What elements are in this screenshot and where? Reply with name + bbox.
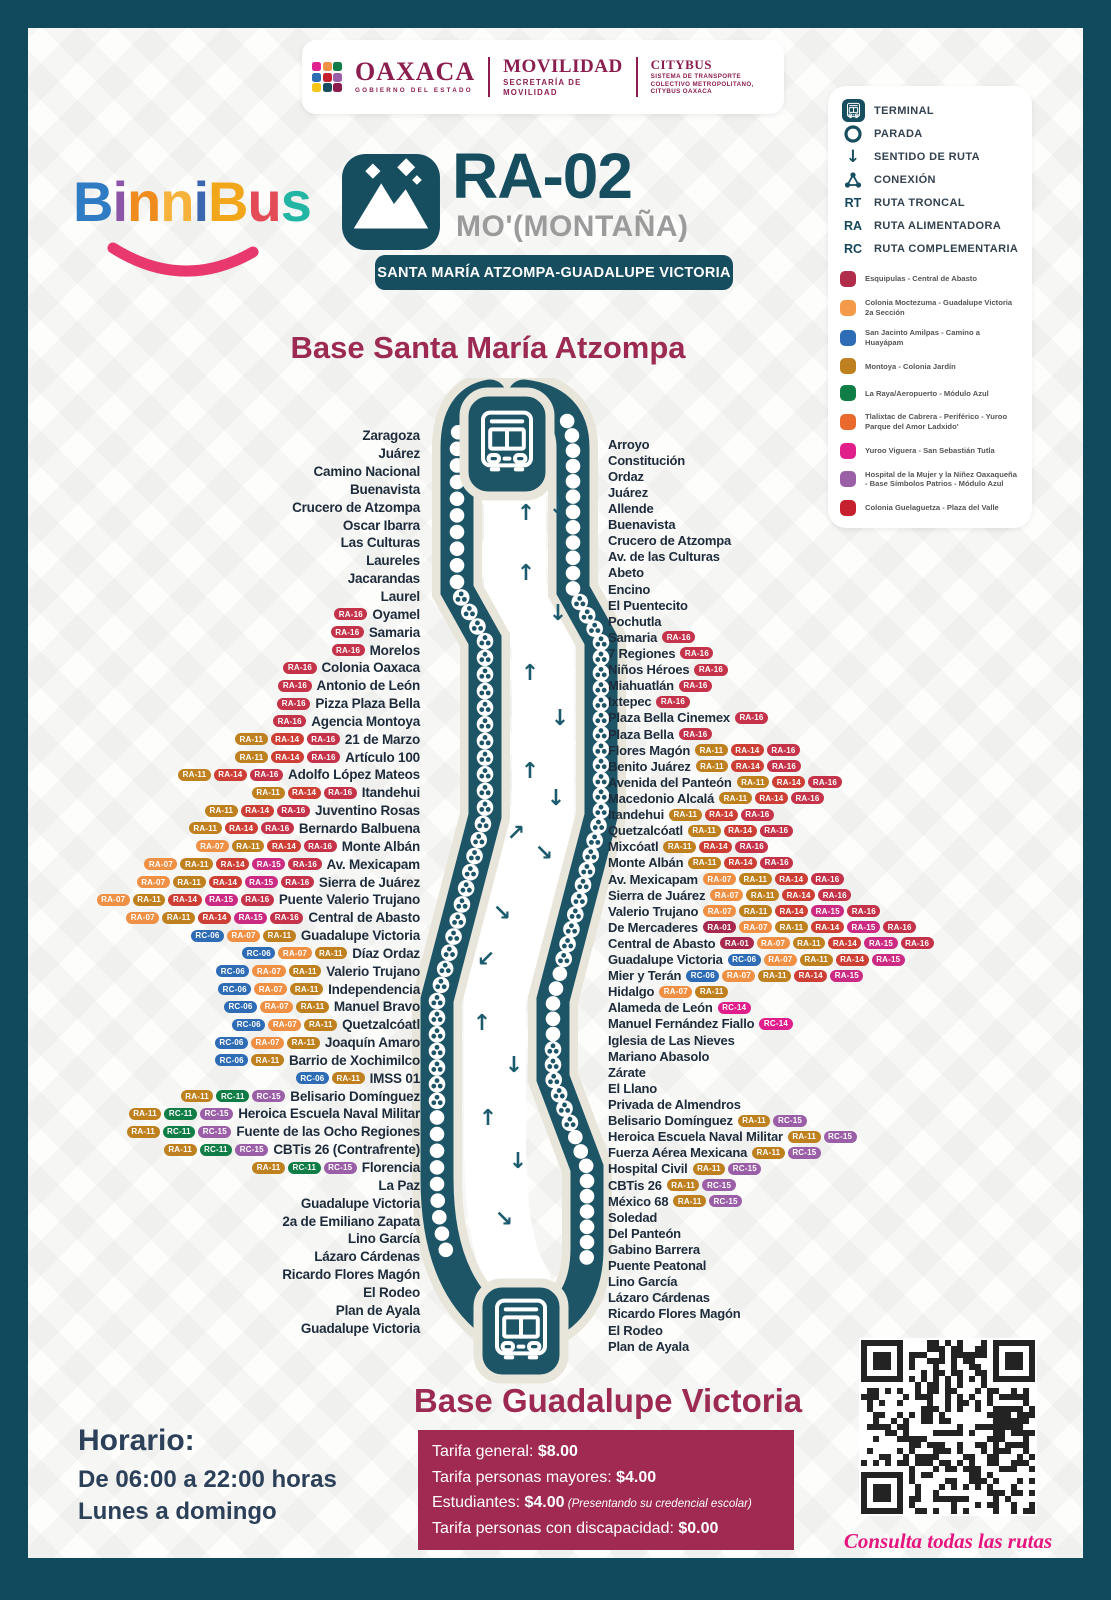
stop-badges: RA-11RC-11RC-15: [127, 1126, 232, 1138]
connection-label: Colonia Moctezuma - Guadalupe Victoria 2…: [865, 298, 1020, 317]
stop-row: 7 RegionesRA-16: [608, 645, 1048, 661]
route-badge: RA-11: [695, 744, 728, 756]
stop-row: Mier y TeránRC-06RA-07RA-11RA-14RA-15: [608, 968, 1048, 984]
stop-row: Crucero de Atzompa: [36, 498, 420, 516]
connection-icon: [840, 170, 866, 190]
legend-abbr: RT: [840, 196, 866, 210]
route-badge: RC-15: [235, 1144, 268, 1156]
stop-name: Buenavista: [608, 517, 675, 532]
connection-stop-dot: [545, 1072, 562, 1089]
stop-row: Juárez: [36, 445, 420, 463]
legend-label: SENTIDO DE RUTA: [874, 151, 980, 163]
stop-dot: [566, 505, 581, 520]
stop-row: RA-11RC-11RC-15Belisario Domínguez: [36, 1087, 420, 1105]
stop-row: Oscar Ibarra: [36, 516, 420, 534]
connection-stop-dot: [556, 1100, 573, 1117]
stop-row: Privada de Almendros: [608, 1096, 1048, 1112]
stop-name: Quetzalcóatl: [608, 823, 683, 838]
route-badge: RA-07: [268, 1019, 301, 1031]
stop-name: Privada de Almendros: [608, 1097, 741, 1112]
stop-badges: RA-11RC-15: [752, 1147, 821, 1159]
connection-label: Tlalixtac de Cabrera - Periférico - Yuro…: [865, 412, 1020, 431]
route-badge: RA-11: [800, 954, 833, 966]
stop-name: Plaza Bella Cinemex: [608, 710, 730, 725]
route-badge: RA-07: [764, 954, 797, 966]
stop-dot: [430, 1177, 445, 1192]
stop-row: Guadalupe Victoria: [36, 1319, 420, 1337]
legend-connection-row: La Raya/Aeropuerto - Módulo Azul: [840, 385, 1020, 401]
stop-dot: [566, 520, 581, 535]
stop-name: Juventino Rosas: [315, 803, 420, 818]
stop-badges: RA-11RA-14RA-16: [252, 787, 357, 799]
stop-row: RC-06RA-11Barrio de Xochimilco: [36, 1052, 420, 1070]
fares-box: Tarifa general: $8.00Tarifa personas may…: [418, 1430, 794, 1550]
stop-row: Valerio TrujanoRA-07RA-11RA-14RA-15RA-16: [608, 903, 1048, 919]
logo-letter: u: [247, 170, 280, 233]
stop-row: Central de AbastoRA-01RA-07RA-11RA-14RA-…: [608, 935, 1048, 951]
route-badge: RA-15: [872, 954, 905, 966]
stop-row: 2a de Emiliano Zapata: [36, 1212, 420, 1230]
stop-dot: [566, 566, 581, 581]
stop-name: Samaria: [608, 630, 657, 645]
stop-name: Plaza Bella: [608, 727, 674, 742]
stop-badges: RA-11RC-11RC-15: [181, 1090, 286, 1102]
route-badge: RC-15: [709, 1195, 742, 1207]
fare-amount: $4.00: [616, 1469, 656, 1486]
connection-stop-dot: [563, 921, 580, 938]
route-badge: RA-11: [696, 760, 729, 772]
stop-row: Macedonio AlcaláRA-11RA-14RA-16: [608, 790, 1048, 806]
stop-row: RA-11RC-11RC-15Heroica Escuela Naval Mil…: [36, 1105, 420, 1123]
stop-row: Laurel: [36, 588, 420, 606]
connection-stop-dot: [454, 896, 471, 913]
stop-dot: [430, 1160, 445, 1175]
stop-name: Morelos: [370, 643, 420, 658]
legend-abbr: RA: [840, 219, 866, 233]
connection-stop-dot: [590, 817, 607, 834]
connection-stop-dot: [593, 695, 610, 712]
stop-dot: [450, 508, 465, 523]
stop-badges: RA-11RA-14RA-16: [688, 857, 793, 869]
stop-row: Sierra de JuárezRA-07RA-11RA-14RA-16: [608, 887, 1048, 903]
legend-connection-row: Esquipulas - Central de Abasto: [840, 271, 1020, 287]
stop-badges: RA-16: [278, 680, 311, 692]
logo-letter: B: [73, 170, 112, 233]
route-badge: RA-16: [679, 680, 712, 692]
route-code: RA-02: [452, 144, 632, 208]
stop-dot: [430, 1110, 445, 1125]
route-badge: RA-11: [164, 1144, 197, 1156]
route-badge: RA-14: [267, 840, 300, 852]
stop-badges: RA-07RA-11RA-14RA-15RA-16: [703, 905, 880, 917]
route-badge: RA-14: [731, 760, 764, 772]
stop-row: Abeto: [608, 565, 1048, 581]
route-badge: RA-14: [731, 744, 764, 756]
stop-row: Plaza Bella CinemexRA-16: [608, 710, 1048, 726]
stop-row: México 68RA-11RC-15: [608, 1193, 1048, 1209]
route-badge: RA-11: [251, 1054, 284, 1066]
stop-name: Valerio Trujano: [608, 904, 698, 919]
fare-amount: $8.00: [538, 1443, 578, 1460]
stop-row: Crucero de Atzompa: [608, 533, 1048, 549]
logo-letter: i: [193, 170, 208, 233]
route-badge: RA-07: [252, 965, 285, 977]
stop-dot: [580, 1189, 595, 1204]
route-badge: RA-16: [250, 769, 283, 781]
stop-row: RA-16Morelos: [36, 641, 420, 659]
connection-stop-dot: [453, 589, 470, 606]
stop-badges: RA-11RA-14RA-16: [235, 733, 340, 745]
connection-color-chip: [840, 330, 856, 346]
legend-label: RUTA TRONCAL: [874, 197, 965, 209]
stop-row: De MercaderesRA-01RA-07RA-11RA-14RA-15RA…: [608, 919, 1048, 935]
stop-name: Macedonio Alcalá: [608, 791, 714, 806]
connection-stop-dot: [429, 1009, 446, 1026]
stop-badges: RA-07RA-11: [659, 986, 728, 998]
stop-badges: RA-16: [694, 664, 727, 676]
stop-name: Puente Valerio Trujano: [279, 892, 420, 907]
stop-dot: [438, 1242, 453, 1257]
stop-name: Crucero de Atzompa: [608, 533, 731, 548]
stop-row: Las Culturas: [36, 534, 420, 552]
stop-badges: RA-16: [332, 644, 365, 656]
route-badge: RA-11: [737, 776, 770, 788]
route-badge: RC-15: [728, 1163, 761, 1175]
stop-row: Zaragoza: [36, 427, 420, 445]
stop-badges: RC-06RA-07RA-11: [218, 983, 323, 995]
stop-name: IMSS 01: [370, 1071, 420, 1086]
route-badge: RA-16: [791, 792, 824, 804]
connection-stop-dot: [567, 906, 584, 923]
stop-name: Laurel: [381, 589, 420, 604]
stop-badges: RA-11RC-15: [693, 1163, 762, 1175]
route-badge: RA-14: [216, 858, 249, 870]
stop-row: Benito JuárezRA-11RA-14RA-16: [608, 758, 1048, 774]
route-badge: RA-11: [232, 840, 265, 852]
route-badge: RA-11: [315, 947, 348, 959]
stop-row: Gabino Barrera: [608, 1241, 1048, 1257]
route-badge: RA-14: [705, 809, 738, 821]
stop-row: Av. de las Culturas: [608, 549, 1048, 565]
stop-row: El Rodeo: [36, 1284, 420, 1302]
stop-name: Itandehui: [608, 807, 664, 822]
stop-name: Artículo 100: [345, 750, 420, 765]
connection-color-chip: [840, 414, 856, 430]
route-badge: RC-14: [759, 1018, 792, 1030]
stop-row: RA-11RA-14RA-16Adolfo López Mateos: [36, 766, 420, 784]
stop-badges: RC-06RA-07RA-11RA-14RA-15: [686, 970, 863, 982]
stop-badges: RA-07RA-11RA-14RA-16: [196, 840, 337, 852]
stop-badges: RA-16: [735, 712, 768, 724]
legend-label: RUTA COMPLEMENTARIA: [874, 243, 1018, 255]
stop-name: Bernardo Balbuena: [299, 821, 420, 836]
stop-dot: [566, 551, 581, 566]
route-badge: RA-15: [811, 905, 844, 917]
stop-row: RA-16Pizza Plaza Bella: [36, 695, 420, 713]
stop-badges: RC-06RA-11: [215, 1054, 284, 1066]
stop-name: El Puentecito: [608, 598, 688, 613]
route-badge: RA-11: [739, 873, 772, 885]
stop-name: Ordaz: [608, 469, 644, 484]
stop-row: Buenavista: [36, 481, 420, 499]
stop-row: Lázaro Cárdenas: [36, 1248, 420, 1266]
route-badge: RA-15: [864, 937, 897, 949]
stop-dot: [580, 1235, 595, 1250]
stop-row: Iglesia de Las Nieves: [608, 1032, 1048, 1048]
stop-dot: [450, 525, 465, 540]
stop-name: Heroica Escuela Naval Militar: [238, 1106, 420, 1121]
fare-note: (Presentando su credencial escolar): [565, 1498, 752, 1510]
stops-list-right: ArroyoConstituciónOrdazJuárezAllendeBuen…: [608, 436, 1048, 1354]
stop-name: 21 de Marzo: [345, 732, 420, 747]
connection-stop-dot: [477, 716, 494, 733]
route-badge: RC-06: [218, 983, 251, 995]
stop-badges: RC-06RA-07RA-11: [191, 930, 296, 942]
legend-symbols: TERMINALPARADA↓SENTIDO DE RUTACONEXIÓNRT…: [840, 99, 1020, 260]
stop-row: RA-11RC-11RC-15Fuente de las Ocho Region…: [36, 1123, 420, 1141]
stop-name: Arroyo: [608, 437, 649, 452]
stop-badges: RA-16: [283, 662, 316, 674]
stop-badges: RC-14: [759, 1018, 792, 1030]
route-badge: RA-14: [168, 894, 201, 906]
route-badge: RA-16: [331, 626, 364, 638]
stop-row: RA-07RA-11RA-14RA-15RA-16Puente Valerio …: [36, 891, 420, 909]
stop-name: Av. Mexicapam: [327, 857, 420, 872]
route-badge: RA-11: [290, 983, 323, 995]
stop-dot: [432, 1210, 447, 1225]
route-direction-icon: ↓: [840, 147, 866, 167]
stop-row: RC-06RA-07RA-11Independencia: [36, 980, 420, 998]
stop-name: Lázaro Cárdenas: [314, 1249, 420, 1264]
stop-name: Jacarandas: [348, 571, 420, 586]
stop-dot: [579, 1250, 594, 1265]
connection-stop-dot: [545, 1041, 562, 1058]
route-badge: RC-06: [215, 1054, 248, 1066]
route-badge: RC-06: [216, 965, 249, 977]
stop-name: Central de Abasto: [308, 910, 420, 925]
stop-badges: RA-11RC-15: [788, 1131, 857, 1143]
route-badge: RA-11: [252, 787, 285, 799]
stop-badges: RA-11RA-14RA-16: [688, 825, 793, 837]
legend-connection-row: San Jacinto Amilpas - Camino a Huayápam: [840, 328, 1020, 347]
stop-row: Manuel Fernández FialloRC-14: [608, 1016, 1048, 1032]
legend-label: CONEXIÓN: [874, 174, 936, 186]
route-badge: RA-11: [235, 751, 268, 763]
stop-name: Díaz Ordaz: [352, 946, 420, 961]
connection-stop-dot: [477, 799, 494, 816]
stop-row: Camino Nacional: [36, 463, 420, 481]
legend-label: PARADA: [874, 128, 923, 140]
direction-arrow-icon: ↓: [509, 1149, 527, 1174]
route-badge: RA-16: [662, 631, 695, 643]
qr-caption: Consulta todas las rutas: [828, 1529, 1068, 1554]
route-badge: RC-06: [242, 947, 275, 959]
qr-block: Consulta todas las rutas: [828, 1338, 1068, 1554]
stop-badges: RA-07RA-11RA-14RA-15RA-16: [137, 876, 314, 888]
stop-row: Juárez: [608, 484, 1048, 500]
stop-row: Monte AlbánRA-11RA-14RA-16: [608, 855, 1048, 871]
route-badge: RA-11: [695, 986, 728, 998]
stop-row: Lino García: [36, 1230, 420, 1248]
route-badge: RA-16: [261, 822, 294, 834]
route-badge: RA-14: [836, 954, 869, 966]
connection-stop-dot: [593, 665, 610, 682]
stop-dot: [580, 1174, 595, 1189]
stop-name: Plan de Ayala: [336, 1303, 420, 1318]
connection-stop-dot: [559, 936, 576, 953]
connection-stop-dot: [441, 944, 458, 961]
stop-row: RA-16Samaria: [36, 623, 420, 641]
stop-row: RA-16Antonio de León: [36, 677, 420, 695]
route-badge: RC-06: [296, 1072, 329, 1084]
route-badge: RA-01: [703, 921, 736, 933]
route-badge: RA-07: [137, 876, 170, 888]
route-badge: RA-07: [659, 986, 692, 998]
emblem-tile: [312, 62, 321, 71]
legend-symbol-row: RTRUTA TRONCAL: [840, 191, 1020, 214]
fare-line: Tarifa personas mayores: $4.00: [432, 1465, 780, 1491]
stop-badges: RC-14: [718, 1002, 751, 1014]
direction-arrow-icon: ↑: [473, 1011, 491, 1036]
route-badge: RA-16: [883, 921, 916, 933]
stop-row: Encino: [608, 581, 1048, 597]
stop-row: RC-06RA-07RA-11Joaquín Amaro: [36, 1034, 420, 1052]
route-badge: RA-11: [746, 889, 779, 901]
stop-row: El Llano: [608, 1080, 1048, 1096]
movilidad-subtitle: SECRETARÍA DE MOVILIDAD: [503, 78, 623, 97]
route-badge: RA-16: [901, 937, 934, 949]
stop-name: Buenavista: [350, 482, 420, 497]
stop-name: Crucero de Atzompa: [292, 500, 420, 515]
direction-arrow-icon: ↘: [495, 1207, 513, 1232]
fare-line: Tarifa personas con discapacidad: $0.00: [432, 1516, 780, 1542]
route-badge: RA-14: [724, 825, 757, 837]
stop-badges: RA-11RA-14RA-16: [695, 744, 800, 756]
stop-row: Arroyo: [608, 436, 1048, 452]
route-badge: RA-14: [811, 921, 844, 933]
connection-color-chip: [840, 271, 856, 287]
stop-name: Ixtepec: [608, 694, 651, 709]
legend-connection-row: Colonia Moctezuma - Guadalupe Victoria 2…: [840, 298, 1020, 317]
base-top-title: Base Santa María Atzompa: [188, 332, 788, 363]
stop-name: Guadalupe Victoria: [301, 928, 420, 943]
route-badge: RA-16: [680, 647, 713, 659]
stop-badges: RA-16: [680, 647, 713, 659]
stop-row: RA-16Colonia Oaxaca: [36, 659, 420, 677]
stop-row: RA-11RA-14RA-16Bernardo Balbuena: [36, 820, 420, 838]
route-badge: RA-14: [241, 805, 274, 817]
stop-dot: [549, 981, 564, 996]
qr-code: [859, 1338, 1037, 1516]
stop-row: SamariaRA-16: [608, 629, 1048, 645]
connection-label: Montoya - Colonia Jardín: [865, 362, 956, 372]
connection-stop-dot: [429, 1026, 446, 1043]
stop-name: Heroica Escuela Naval Militar: [608, 1129, 783, 1144]
stop-name: Manuel Fernández Fiallo: [608, 1016, 754, 1031]
emblem-tile: [333, 83, 342, 92]
connection-stop-dot: [445, 928, 462, 945]
fare-label: Estudiantes:: [432, 1494, 525, 1511]
stop-name: Belisario Domínguez: [290, 1089, 420, 1104]
route-badge: RC-11: [200, 1144, 233, 1156]
stop-badges: RA-07RA-11RA-14RA-15RA-16: [126, 912, 303, 924]
route-badge: RA-11: [663, 841, 696, 853]
smile-icon: [103, 240, 263, 286]
direction-arrow-icon: ↓: [551, 706, 569, 731]
legend-symbol-row: CONEXIÓN: [840, 168, 1020, 191]
connection-stop-dot: [477, 733, 494, 750]
connection-stop-dot: [429, 1059, 446, 1076]
route-badge: RA-11: [758, 970, 791, 982]
route-badge: RA-11: [181, 1090, 214, 1102]
stop-name: Lino García: [348, 1231, 420, 1246]
stop-name: Oscar Ibarra: [343, 518, 420, 533]
stop-row: RA-11RC-11RC-15Florencia: [36, 1159, 420, 1177]
stop-row: Av. MexicapamRA-07RA-11RA-14RA-16: [608, 871, 1048, 887]
route-badge: RA-07: [144, 858, 177, 870]
route-badge: RA-16: [334, 608, 367, 620]
stop-row: Pochutla: [608, 613, 1048, 629]
fare-line: Tarifa general: $8.00: [432, 1439, 780, 1465]
route-badge: RA-14: [225, 822, 258, 834]
schedule-hours: De 06:00 a 22:00 horas: [78, 1464, 337, 1496]
stop-badges: RA-16: [679, 728, 712, 740]
stop-badges: RA-11RC-11RC-15: [164, 1144, 269, 1156]
route-badge: RA-16: [818, 889, 851, 901]
route-poster: OAXACA GOBIERNO DEL ESTADO MOVILIDAD SEC…: [0, 0, 1111, 1600]
terminal-top: [464, 392, 550, 496]
route-badge: RA-01: [720, 937, 753, 949]
route-badge: RA-11: [287, 1037, 320, 1049]
route-badge: RA-11: [739, 905, 772, 917]
route-badge: RC-06: [686, 970, 719, 982]
direction-arrow-icon: ↑: [479, 1106, 497, 1131]
route-badge: RA-14: [775, 905, 808, 917]
route-badge: RA-14: [271, 733, 304, 745]
stop-name: De Mercaderes: [608, 920, 698, 935]
route-badge: RA-07: [196, 840, 229, 852]
stop-name: El Rodeo: [608, 1323, 663, 1338]
stop-badges: RA-11RA-14RA-16: [737, 776, 842, 788]
stop-badges: RA-11RA-14RA-16: [178, 769, 283, 781]
connection-stop-dot: [593, 634, 610, 651]
stop-name: México 68: [608, 1194, 668, 1209]
route-badge: RA-16: [847, 905, 880, 917]
movilidad-title: MOVILIDAD: [503, 57, 623, 76]
stop-name: Plan de Ayala: [608, 1339, 689, 1354]
route-badge: RC-15: [324, 1162, 357, 1174]
stop-row: Ricardo Flores Magón: [608, 1306, 1048, 1322]
stop-name: Lázaro Cárdenas: [608, 1290, 710, 1305]
stop-row: RA-07RA-11RA-14RA-15RA-16Sierra de Juáre…: [36, 873, 420, 891]
stop-row: Guadalupe VictoriaRC-06RA-07RA-11RA-14RA…: [608, 952, 1048, 968]
route-badge: RC-11: [163, 1126, 196, 1138]
route-badge: RA-14: [271, 751, 304, 763]
stop-row: El Puentecito: [608, 597, 1048, 613]
stop-name: Monte Albán: [608, 855, 683, 870]
stop-name: Sierra de Juárez: [319, 875, 420, 890]
stop-name: Puente Peatonal: [608, 1258, 706, 1273]
stop-badges: RC-06RA-07RA-11RA-14RA-15: [728, 954, 905, 966]
route-badge: RA-16: [735, 841, 768, 853]
stop-row: Mariano Abasolo: [608, 1048, 1048, 1064]
connection-stop-dot: [575, 877, 592, 894]
stop-name: Juárez: [378, 446, 420, 461]
connection-color-chip: [840, 358, 856, 374]
direction-arrow-icon: ↑: [517, 501, 535, 526]
route-badge: RA-16: [278, 680, 311, 692]
direction-arrow-icon: ↗: [507, 821, 525, 846]
